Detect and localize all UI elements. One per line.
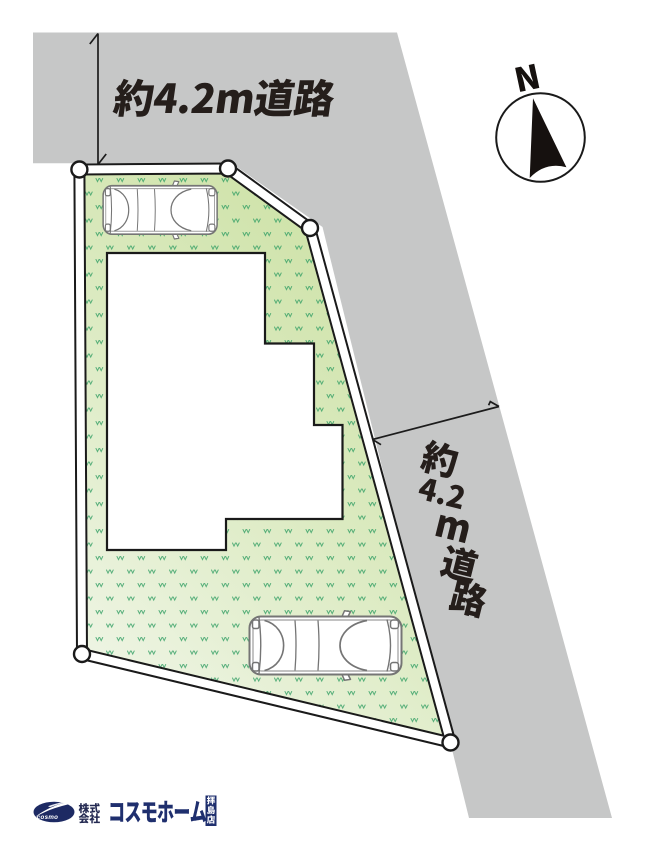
svg-text:cosmo: cosmo: [37, 814, 58, 821]
